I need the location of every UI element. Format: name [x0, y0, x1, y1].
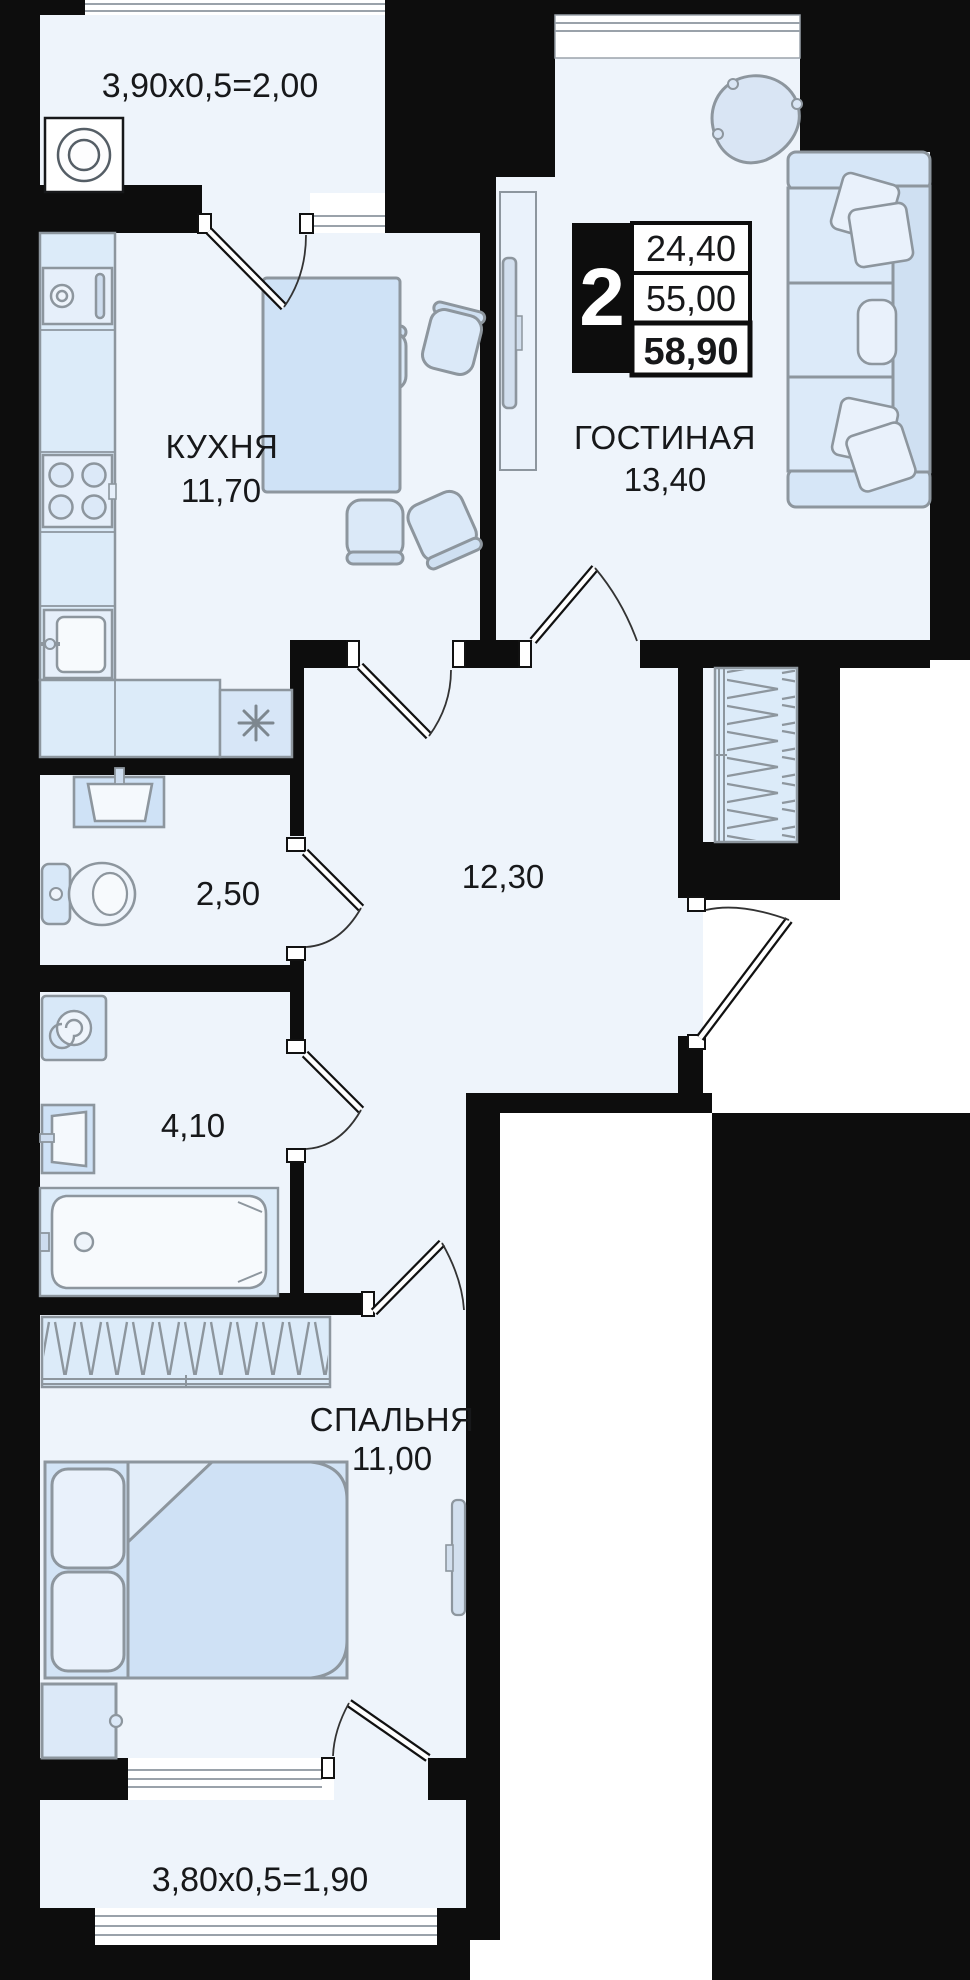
label-kitchen-name: КУХНЯ — [166, 428, 279, 465]
wall-wardrobe-right — [797, 640, 840, 842]
wall-kitchen-wc — [40, 757, 304, 775]
rooms-count: 2 — [579, 252, 625, 343]
wall-mid-c — [640, 640, 930, 668]
toilet-icon — [42, 863, 135, 925]
opening-living — [531, 640, 640, 668]
wall-right — [930, 0, 970, 660]
label-kitchen-area: 11,70 — [181, 472, 261, 509]
wall-bottom-strip — [40, 1945, 470, 1980]
oven-icon — [43, 268, 112, 324]
wall-hall-bottom — [466, 1093, 712, 1113]
kitchen-counter-bottom — [40, 680, 220, 757]
hall-wardrobe — [715, 668, 797, 842]
opening-balcony-top — [202, 185, 310, 233]
label-living-name: ГОСТИНАЯ — [574, 419, 756, 456]
wall-balcony-bottom-corner-l — [40, 1908, 95, 1945]
wall-bath-right-b — [290, 1150, 304, 1293]
snowflake-icon — [239, 706, 273, 740]
boiler-icon — [45, 118, 123, 192]
nightstand — [42, 1684, 122, 1758]
wall-wc-right-a — [290, 775, 304, 836]
outside-right-upper — [840, 668, 970, 1113]
bedroom-wardrobe — [42, 1317, 330, 1387]
wall-wc-bath — [40, 965, 304, 992]
wall-bedroom-balcony-b — [428, 1758, 466, 1800]
window-balcony-top — [85, 0, 385, 15]
wall-bottom-right-field — [712, 1113, 970, 1980]
bed — [45, 1462, 347, 1678]
total-area-value: 58,90 — [643, 331, 738, 373]
stove-icon — [43, 455, 116, 527]
label-hallway-area: 12,30 — [462, 858, 545, 895]
window-kitchen — [310, 210, 385, 233]
tv-unit — [500, 192, 536, 470]
area-table: 2 24,40 55,00 58,90 — [572, 223, 750, 375]
label-wc-area: 2,50 — [196, 875, 260, 912]
outside-right-lower — [500, 1113, 712, 1980]
kitchen-sink-icon — [40, 610, 112, 678]
sofa — [788, 152, 930, 507]
wall-top-corner — [40, 0, 85, 15]
window-balcony-bottom — [95, 1908, 437, 1945]
opening-entrance — [678, 898, 703, 1038]
wall-above-living-window — [555, 0, 800, 15]
room-corridor-floor — [304, 1093, 466, 1293]
washbasin-icon — [74, 768, 164, 827]
opening-wc — [290, 836, 304, 948]
label-balcony-top: 3,90x0,5=2,00 — [102, 67, 318, 105]
opening-balcony-bottom — [334, 1758, 428, 1800]
bath-sink-icon — [40, 1105, 94, 1173]
wall-balcony-bottom-corner-r — [437, 1908, 470, 1945]
opening-bathroom — [290, 1052, 304, 1152]
label-balcony-bottom: 3,80x0,5=1,90 — [152, 1861, 368, 1899]
wall-bedroom-right — [466, 1093, 500, 1940]
opening-kitchen — [359, 640, 453, 668]
wall-entry-step — [703, 842, 840, 900]
label-bedroom-area: 11,00 — [352, 1440, 432, 1477]
window-living — [555, 15, 800, 58]
wall-living-pillar — [480, 0, 555, 177]
fridge-icon — [220, 690, 292, 757]
window-bedroom — [128, 1763, 322, 1793]
washing-machine-icon — [42, 996, 106, 1060]
dining-chair — [347, 500, 403, 564]
label-bathroom-area: 4,10 — [161, 1107, 225, 1144]
floor-plan: 2 24,40 55,00 58,90 — [0, 0, 970, 1980]
dining-table — [263, 278, 400, 492]
wall-left — [0, 0, 40, 1980]
wall-shaft — [385, 0, 480, 233]
living-area-value: 24,40 — [646, 228, 736, 269]
label-living-area: 13,40 — [624, 461, 707, 498]
wall-entrance-a — [678, 668, 703, 898]
bathtub-icon — [40, 1188, 278, 1296]
wall-living-top-right — [800, 0, 930, 152]
wall-bedroom-balcony-a — [40, 1758, 128, 1800]
apartment-area-value: 55,00 — [646, 278, 736, 319]
floor-plan-page: 2 24,40 55,00 58,90 — [0, 0, 970, 1980]
wall-kitchen-living — [480, 177, 496, 640]
label-bedroom-name: СПАЛЬНЯ — [310, 1401, 475, 1438]
